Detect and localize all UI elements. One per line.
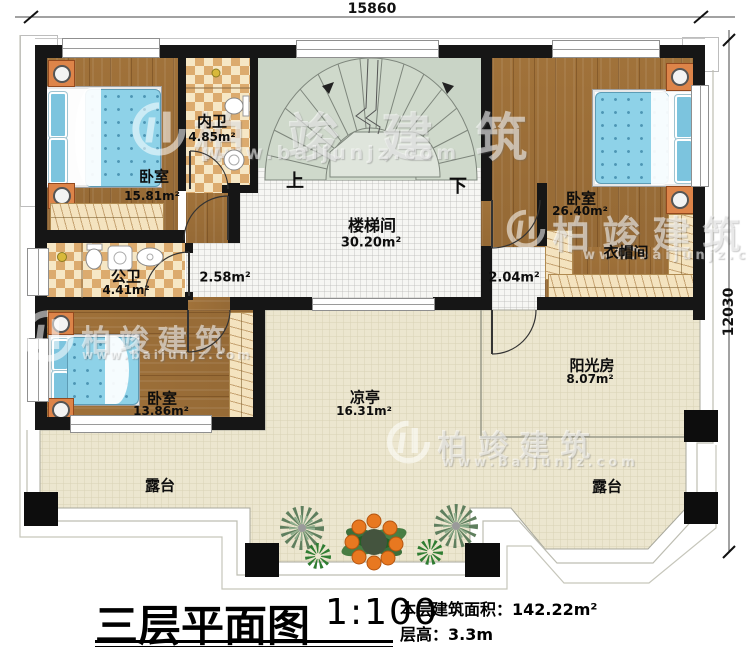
room-area-inner-bath: 4.85m² bbox=[188, 130, 235, 144]
dimension-height: 12030 bbox=[721, 282, 737, 342]
room-label-terrace-left: 露台 bbox=[145, 475, 175, 496]
floor-area-label: 本层建筑面积： bbox=[400, 600, 512, 619]
floor-height-value: 3.3m bbox=[448, 625, 493, 644]
room-label-inner-bath: 内卫 bbox=[197, 111, 227, 132]
room-area-bedroom3: 13.86m² bbox=[133, 404, 189, 418]
floor-area-value: 142.22m² bbox=[512, 600, 597, 619]
stairs-down-label: 下 bbox=[449, 172, 467, 198]
stairs-up-label: 上 bbox=[286, 167, 304, 193]
hall-right-area: 2.04m² bbox=[488, 271, 539, 286]
room-area-pavilion: 16.31m² bbox=[336, 404, 392, 418]
dimension-width: 15860 bbox=[338, 1, 406, 17]
room-area-public-bath: 4.41m² bbox=[102, 283, 149, 297]
floor-height-label: 层高： bbox=[400, 625, 448, 644]
room-label-cloakroom: 衣帽间 bbox=[603, 242, 648, 263]
room-label-terrace-right: 露台 bbox=[592, 476, 622, 497]
title-block: 三层平面图 1:100 本层建筑面积：142.22m² 层高：3.3m bbox=[95, 592, 655, 656]
door-arcs bbox=[145, 151, 540, 354]
room-label-bedroom1: 卧室 bbox=[139, 166, 169, 187]
title-underline bbox=[95, 646, 393, 647]
room-area-bedroom2: 26.40m² bbox=[552, 204, 608, 218]
room-area-sunroom: 8.07m² bbox=[566, 372, 613, 386]
room-area-bedroom1: 15.81m² bbox=[124, 189, 180, 203]
doors-and-fixtures bbox=[0, 0, 750, 664]
title-underline bbox=[95, 640, 393, 643]
room-label-stairwell: 楼梯间 bbox=[348, 212, 396, 236]
room-area-stairwell: 30.20m² bbox=[341, 236, 401, 251]
hall-left-area: 2.58m² bbox=[199, 271, 250, 286]
floor-plan: 柏竣建筑 www.baijunjz.com 柏竣建筑 www.baijunjz.… bbox=[0, 0, 750, 664]
plan-title: 三层平面图 bbox=[95, 602, 310, 652]
